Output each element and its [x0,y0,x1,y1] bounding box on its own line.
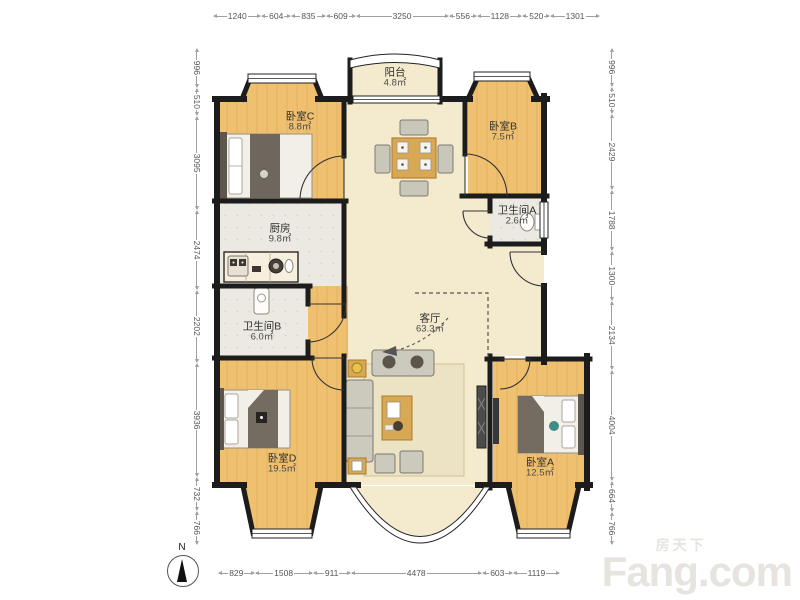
dim-arrow-left-icon [610,114,614,118]
room-area: 9.8㎡ [269,235,292,246]
room-area: 8.8㎡ [286,123,315,134]
dimension-label: 766 [190,520,203,536]
dim-arrow-left-icon [195,48,199,52]
dimension-segment: 604 [261,10,291,23]
dimension-segment: 2429 [605,114,618,189]
dimension-segment: 1240 [213,10,261,23]
compass: N [165,544,199,594]
dim-arrow-left-icon [261,14,265,18]
dimension-segment: 1301 [550,10,600,23]
dimension-segment: 1119 [513,567,560,580]
room-label-bathroom-a: 卫生间A 2.6㎡ [498,205,537,228]
room-area: 2.6㎡ [498,217,537,228]
dim-arrow-left-icon [326,14,330,18]
room-label-kitchen: 厨房 9.8㎡ [269,223,292,246]
dimension-segment: 2474 [190,210,203,290]
dimension-segment: 3250 [356,10,449,23]
bedroom-c-furniture [220,132,312,200]
dimension-segment: 732 [190,477,203,511]
dimension-segment: 829 [218,567,255,580]
room-area: 12.5㎡ [526,469,554,480]
room-area: 4.8㎡ [384,79,407,90]
dimension-label: 835 [300,10,316,23]
dim-arrow-left-icon [195,210,199,214]
room-area: 6.0㎡ [243,333,282,344]
compass-north-label: N [165,542,199,553]
dimension-segment: 2202 [190,290,203,363]
dimension-segment: 4004 [605,370,618,481]
dim-arrow-left-icon [610,251,614,255]
dimension-label: 510 [190,94,203,110]
ruler-top: 1240604835609325055611285201301 [213,10,600,23]
dimension-label: 2429 [605,141,618,162]
dimension-label: 604 [268,10,284,23]
dimension-label: 4004 [605,415,618,436]
fang-logo-en: Fang.com [602,552,792,592]
dimension-label: 2474 [190,240,203,261]
dim-arrow-left-icon [351,571,355,575]
ruler-left: 9965103095247422023936732766 [190,48,203,545]
room-label-bedroom-c: 卧室C 8.8㎡ [286,111,315,134]
dim-arrow-right-icon [556,571,560,575]
dim-arrow-left-icon [195,290,199,294]
dimension-label: 732 [190,486,203,502]
dimension-label: 609 [333,10,349,23]
room-label-bathroom-b: 卫生间B 6.0㎡ [243,321,282,344]
dimension-segment: 520 [522,10,550,23]
dim-arrow-left-icon [610,301,614,305]
dimension-segment: 911 [313,567,351,580]
room-label-bedroom-a: 卧室A 12.5㎡ [526,457,554,480]
dim-arrow-left-icon [513,571,517,575]
kitchen-fixtures [224,252,298,282]
ruler-bottom: 829150891144786031119 [218,567,560,580]
dimension-label: 3936 [190,410,203,431]
floor-plan: 阳台 4.8㎡ 卧室C 8.8㎡ 卧室B 7.5㎡ 卫生间A 2.6㎡ 厨房 9… [212,46,598,546]
dimension-segment: 664 [605,481,618,512]
dimension-label: 520 [528,10,544,23]
dimension-label: 996 [190,60,203,76]
fang-watermark: 房天下 Fang.com [602,538,792,592]
dimension-segment: 996 [190,48,203,88]
dimension-segment: 603 [482,567,513,580]
room-area: 19.5㎡ [268,465,297,476]
dimension-label: 603 [489,567,505,580]
dim-arrow-left-icon [195,477,199,481]
dimension-segment: 3936 [190,363,203,477]
dimension-label: 556 [455,10,471,23]
dimension-segment: 4478 [351,567,482,580]
room-label-bedroom-b: 卧室B 7.5㎡ [489,121,517,144]
dim-arrow-left-icon [213,14,217,18]
dimension-label: 1300 [605,265,618,286]
dimension-label: 911 [324,567,340,580]
dim-arrow-right-icon [596,14,600,18]
dim-arrow-left-icon [610,370,614,374]
dim-arrow-left-icon [195,88,199,92]
room-area: 7.5㎡ [489,133,517,144]
dim-arrow-left-icon [218,571,222,575]
dimension-label: 996 [605,59,618,75]
dimension-segment: 1788 [605,190,618,251]
dim-arrow-left-icon [610,190,614,194]
dimension-label: 1128 [490,10,510,23]
dim-arrow-left-icon [449,14,453,18]
dim-arrow-left-icon [291,14,295,18]
canvas: { "rulers": { "top": ["1240","604","835"… [0,0,800,600]
dim-arrow-left-icon [522,14,526,18]
dim-arrow-left-icon [550,14,554,18]
dimension-label: 2134 [605,325,618,346]
dimension-label: 510 [605,92,618,108]
dim-arrow-left-icon [356,14,360,18]
dimension-segment: 1300 [605,251,618,301]
dimension-segment: 510 [190,88,203,116]
dimension-segment: 996 [605,48,618,87]
dimension-label: 1788 [605,210,618,231]
dim-arrow-left-icon [482,571,486,575]
dim-arrow-left-icon [313,571,317,575]
dimension-label: 1119 [527,567,547,580]
dim-arrow-left-icon [477,14,481,18]
compass-needle-icon [177,559,187,582]
dim-arrow-left-icon [195,116,199,120]
dimension-label: 3095 [190,153,203,174]
room-label-bedroom-d: 卧室D 19.5㎡ [268,453,297,476]
dimension-segment: 835 [291,10,326,23]
dimension-label: 1508 [273,567,294,580]
dim-arrow-left-icon [610,481,614,485]
dimension-segment: 1128 [477,10,522,23]
bedroom-d-furniture [218,388,290,450]
dim-arrow-left-icon [255,571,259,575]
dimension-segment: 3095 [190,116,203,210]
dimension-label: 766 [605,520,618,536]
dimension-label: 1301 [565,10,586,23]
dimension-segment: 609 [326,10,356,23]
room-label-balcony: 阳台 4.8㎡ [384,67,407,90]
dimension-segment: 556 [449,10,478,23]
room-area: 63.3㎡ [416,325,444,336]
dimension-label: 829 [228,567,244,580]
dimension-label: 1240 [227,10,248,23]
dimension-segment: 1508 [255,567,313,580]
dim-arrow-left-icon [610,48,614,52]
dimension-label: 664 [605,488,618,504]
dimension-label: 2202 [190,316,203,337]
dim-arrow-left-icon [195,511,199,515]
dim-arrow-left-icon [610,512,614,516]
dimension-segment: 2134 [605,301,618,370]
dimension-segment: 766 [190,511,203,545]
dim-arrow-left-icon [610,87,614,91]
dim-arrow-left-icon [195,363,199,367]
dimension-segment: 510 [605,87,618,115]
dimension-label: 3250 [392,10,413,23]
room-label-living-room: 客厅 63.3㎡ [416,313,444,336]
dimension-label: 4478 [406,567,427,580]
ruler-right: 99651024291788130021344004664766 [605,48,618,545]
